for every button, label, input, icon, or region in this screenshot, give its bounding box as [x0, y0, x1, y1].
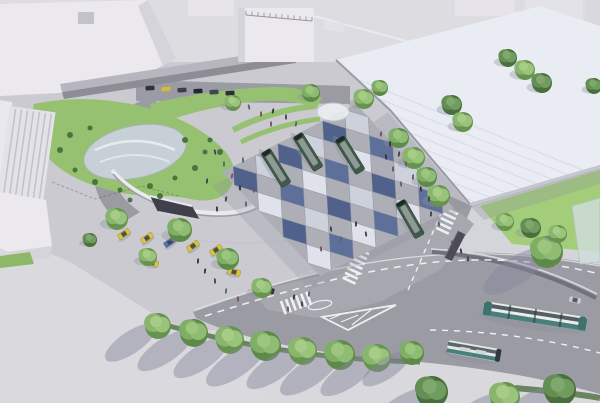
person — [287, 306, 289, 311]
shrub — [203, 150, 208, 155]
tree-highlight — [525, 220, 534, 229]
car-body — [177, 88, 186, 93]
person — [285, 114, 287, 119]
tree-highlight — [306, 86, 314, 94]
shrub — [57, 147, 63, 153]
tree-highlight — [457, 114, 466, 123]
rooftop-plant-box — [78, 12, 94, 24]
parked-car — [145, 86, 154, 91]
tree-highlight — [375, 82, 382, 89]
car-body — [209, 90, 218, 95]
tree-highlight — [186, 322, 199, 335]
person — [245, 201, 247, 206]
tree-highlight — [257, 334, 271, 348]
canopy-dome — [317, 103, 349, 121]
tree-highlight — [228, 97, 235, 104]
shrub — [73, 168, 78, 173]
parked-car — [161, 87, 170, 92]
shrub — [67, 132, 73, 138]
person — [260, 111, 262, 116]
car-body — [161, 87, 170, 92]
shrub — [173, 176, 178, 181]
tree-highlight — [358, 91, 367, 100]
person — [223, 161, 225, 166]
tree-highlight — [536, 75, 545, 84]
shrub — [118, 188, 123, 193]
tree-highlight — [86, 234, 92, 240]
tree-highlight — [589, 80, 596, 87]
tree-highlight — [331, 343, 345, 357]
shrub — [128, 198, 133, 203]
tree-highlight — [496, 385, 510, 399]
car-body — [225, 91, 234, 96]
person — [467, 256, 469, 261]
tree-highlight — [393, 130, 402, 139]
person — [301, 301, 303, 306]
tree-highlight — [432, 187, 442, 197]
shrub — [92, 179, 98, 185]
tree-highlight — [422, 379, 436, 393]
tree-highlight — [110, 210, 120, 220]
tree-highlight — [550, 377, 564, 391]
tree-highlight — [407, 149, 417, 159]
tree-highlight — [500, 215, 508, 223]
shrub — [217, 149, 223, 155]
shrub — [157, 193, 163, 199]
tree-highlight — [222, 329, 235, 342]
screenshot-stage — [0, 0, 600, 403]
southwest-building — [0, 192, 52, 252]
person — [355, 221, 357, 226]
tree-highlight — [173, 220, 184, 231]
person — [270, 121, 272, 126]
context-building — [188, 0, 234, 16]
shrub — [88, 126, 93, 131]
tree-highlight — [503, 51, 511, 59]
car-body — [145, 86, 154, 91]
tree-highlight — [221, 250, 231, 260]
person — [239, 185, 241, 190]
parked-car — [193, 89, 202, 94]
shrub — [147, 183, 153, 189]
tree-highlight — [369, 347, 382, 360]
person — [430, 211, 432, 216]
parked-car — [177, 88, 186, 93]
shrub — [192, 165, 198, 171]
shrub — [208, 138, 213, 143]
building-side-face — [238, 8, 245, 62]
tree-highlight — [553, 227, 561, 235]
tree-highlight — [256, 280, 265, 289]
shrub — [182, 137, 188, 143]
tree-highlight — [446, 97, 455, 106]
tree-highlight — [405, 343, 416, 354]
tree-highlight — [519, 62, 528, 71]
person — [392, 166, 394, 171]
context-building — [455, 0, 515, 16]
tree-highlight — [295, 340, 308, 353]
car-body — [193, 89, 202, 94]
parked-car — [225, 91, 234, 96]
tree-highlight — [421, 169, 430, 178]
person — [451, 240, 453, 245]
parked-car — [209, 90, 218, 95]
tree-highlight — [143, 250, 151, 258]
person — [216, 206, 218, 211]
tree-highlight — [150, 316, 162, 328]
aerial-architectural-render — [0, 0, 600, 403]
person — [242, 157, 244, 162]
